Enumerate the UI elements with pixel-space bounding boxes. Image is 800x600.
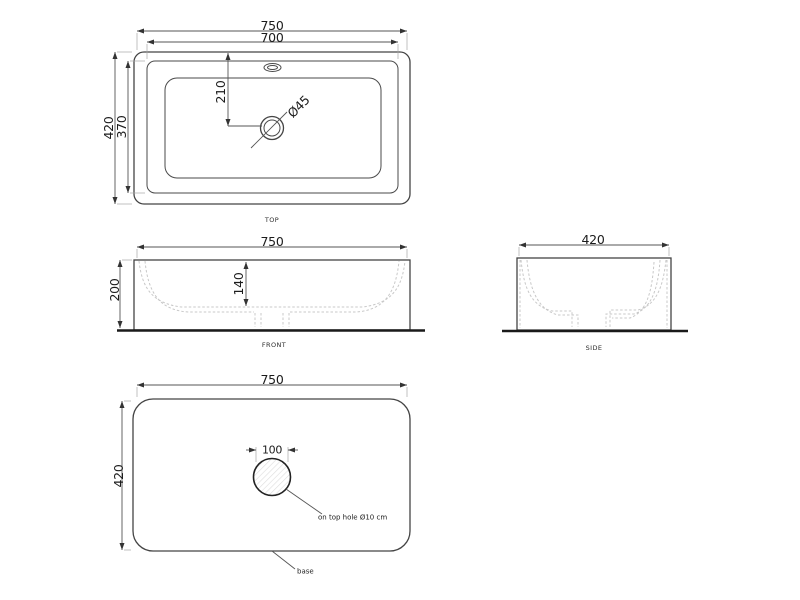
base-leader-label: base <box>297 569 314 576</box>
side-view-label: SIDE <box>586 345 603 352</box>
side-dim-depth: 420 <box>582 234 605 247</box>
front-view-geometry <box>117 247 425 331</box>
front-dim-bowl-depth: 140 <box>233 273 246 296</box>
front-dim-width: 750 <box>261 236 284 249</box>
top-view-label: TOP <box>265 217 279 224</box>
drain-hole-inner-outline <box>264 120 280 136</box>
top-outer-outline <box>134 52 410 204</box>
top-bowl-outline <box>165 78 381 178</box>
base-view-geometry <box>122 385 410 569</box>
base-hole-note: on top hole Ø10 cm <box>318 515 387 522</box>
base-label-leader-line <box>272 551 295 569</box>
front-outline <box>134 260 410 330</box>
front-view-label: FRONT <box>262 342 286 349</box>
top-dim-drain-offset: 210 <box>215 81 228 104</box>
top-view-geometry <box>115 31 410 204</box>
washbasin-technical-drawing: 750 700 420 370 210 Ø45 TOP 750 200 140 … <box>0 0 800 600</box>
side-outline <box>517 258 671 330</box>
front-dim-height: 200 <box>109 279 122 302</box>
hole-note-leader-line <box>286 489 322 514</box>
base-dim-hole-width: 100 <box>262 445 282 456</box>
base-hole-outline <box>254 459 291 496</box>
base-dim-width: 750 <box>261 374 284 387</box>
base-dim-depth: 420 <box>113 465 126 488</box>
overflow-slot-inner-icon <box>268 66 278 70</box>
side-view-geometry <box>502 245 688 331</box>
top-dim-inner-depth: 370 <box>116 116 129 139</box>
overflow-slot-icon <box>264 64 281 72</box>
top-dim-inner-width: 700 <box>261 32 284 45</box>
